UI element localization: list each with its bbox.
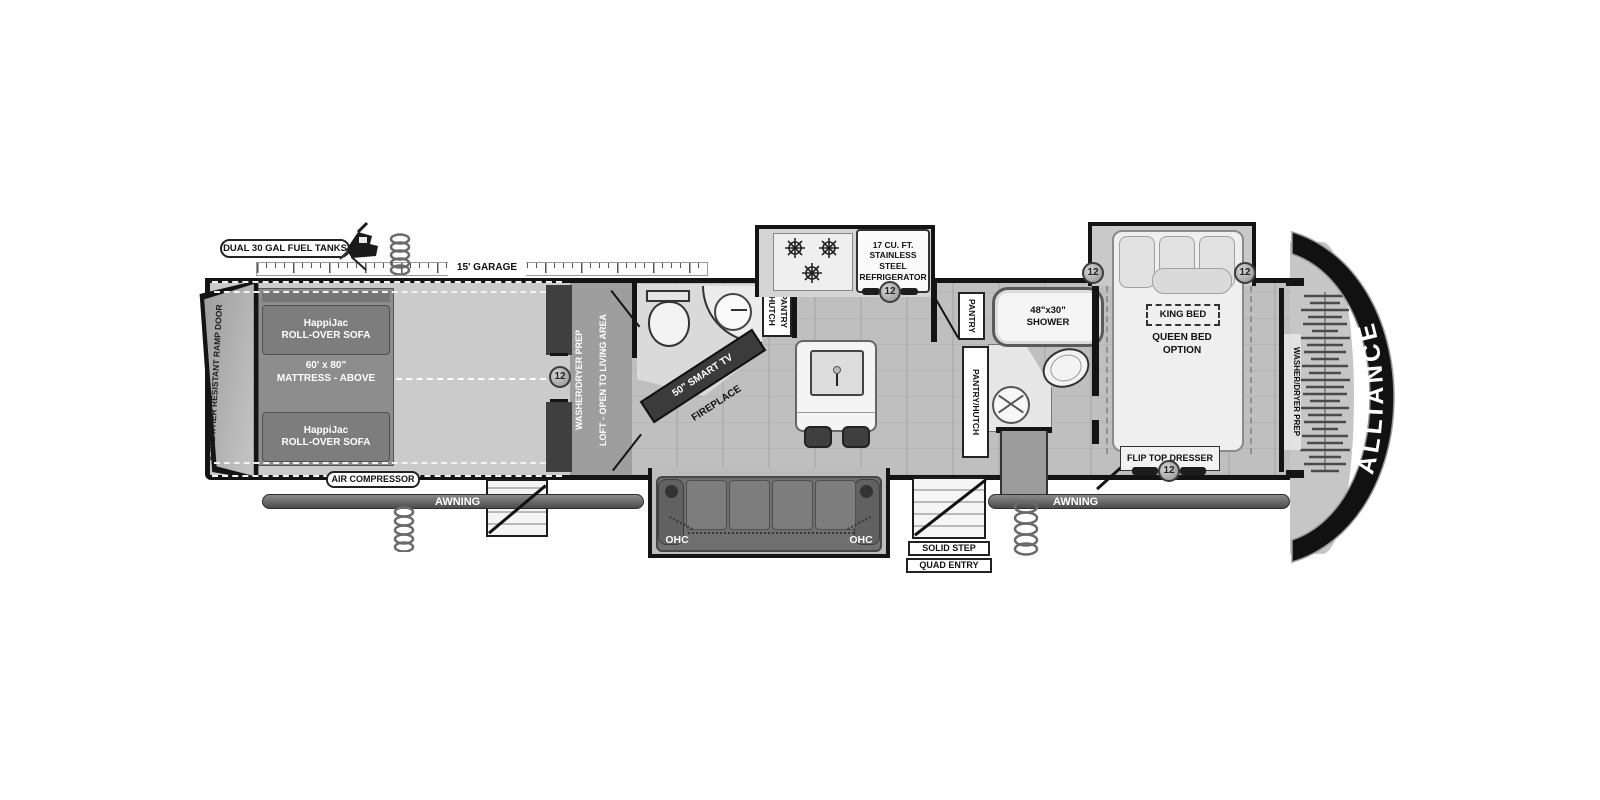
garage-dash-top — [214, 291, 546, 293]
hull-top-dash — [212, 281, 562, 283]
awning-right-label: AWNING — [1053, 496, 1098, 508]
awning-left-label: AWNING — [435, 496, 480, 508]
bed-bolster — [1152, 268, 1232, 294]
mattress-label: 60' x 80" MATTRESS - ABOVE — [264, 360, 388, 385]
rollover-sofa-front: HappiJac ROLL-OVER SOFA — [262, 305, 390, 355]
entry-landing — [1000, 431, 1048, 495]
king-bed-label: KING BED — [1160, 309, 1206, 321]
hose-coil-left-icon — [392, 506, 416, 552]
island-faucet-handle — [836, 374, 838, 386]
island-divider — [797, 412, 875, 413]
sofa-cupholder-left — [665, 485, 678, 498]
pantry-cabinet: PANTRY — [958, 292, 985, 340]
corner-sink-mid-basin — [714, 293, 752, 331]
air-compressor-label: AIR COMPRESSOR — [326, 471, 420, 488]
garage-door-marker: 12 — [549, 366, 571, 388]
bed-marker-left: 12 — [1082, 262, 1104, 284]
corner-sink-mid-faucet — [731, 309, 747, 311]
hose-coil-right-icon — [1012, 500, 1040, 556]
pillow-left — [1119, 236, 1155, 288]
awning-bar-left: AWNING — [262, 494, 644, 509]
rollover-sofa-rear: HappiJac ROLL-OVER SOFA — [262, 412, 390, 462]
sofa-rear-label: HappiJac ROLL-OVER SOFA — [282, 425, 371, 450]
sofa-front-dotted — [688, 532, 854, 534]
stove-burners-icon — [773, 233, 853, 291]
garage-wall-lower — [546, 402, 572, 472]
shower-label: 48"x30" SHOWER — [1027, 305, 1070, 329]
fridge-marker: 12 — [879, 281, 901, 303]
sofa-seat-1 — [686, 480, 727, 530]
bedroom-wall-lower — [1092, 420, 1099, 444]
brand-text: ALLIANCE — [1351, 317, 1389, 477]
svg-text:ALLIANCE: ALLIANCE — [1351, 317, 1389, 477]
air-compressor-text: AIR COMPRESSOR — [331, 474, 414, 485]
loft-open-label: LOFT - OPEN TO LIVING AREA — [598, 292, 616, 468]
sofa-cupholder-right — [860, 485, 873, 498]
bedroom-wall-upper — [1092, 282, 1099, 396]
fuel-tanks-text: DUAL 30 GAL FUEL TANKS — [223, 243, 347, 255]
floorplan-canvas: 8' WEATHER RESISTANT RAMP DOOR DUAL 30 G… — [0, 0, 1600, 800]
dresser-marker-wing-right — [1180, 467, 1206, 475]
fuel-nozzle-icon — [338, 220, 384, 260]
closet-wall — [1279, 288, 1284, 472]
pantry-hutch-cabinet: PANTRY/HUTCH — [962, 346, 989, 458]
quad-entry-text: QUAD ENTRY — [919, 560, 978, 571]
sofa-front-label: HappiJac ROLL-OVER SOFA — [282, 318, 371, 343]
island-stool-right — [842, 426, 870, 448]
refrigerator-label: 17 CU. FT. STAINLESS STEEL REFRIGERATOR — [858, 240, 928, 283]
garage-dash-mid — [396, 378, 546, 380]
island-faucet — [833, 366, 841, 374]
shower: 48"x30" SHOWER — [992, 287, 1104, 347]
king-bed-tag: KING BED — [1146, 304, 1220, 326]
front-cap: ALLIANCE — [1290, 224, 1396, 570]
garage-length-label: 15' GARAGE — [448, 259, 526, 278]
hutch-pantry-label: HUTCH PANTRY — [765, 294, 789, 328]
sofa-seat-4 — [815, 480, 856, 530]
garage-length-text: 15' GARAGE — [457, 262, 517, 275]
sofa-seat-3 — [772, 480, 813, 530]
ohc-right-label: OHC — [846, 534, 876, 547]
garage-door-rail-bottom — [550, 399, 568, 402]
dresser-marker: 12 — [1158, 460, 1180, 482]
quad-entry-tag: QUAD ENTRY — [906, 558, 992, 573]
solid-step-tag: SOLID STEP — [908, 541, 990, 556]
fuel-tanks-label: DUAL 30 GAL FUEL TANKS — [220, 239, 350, 258]
dresser-marker-wing-left — [1132, 467, 1158, 475]
fridge-marker-wing-right — [900, 288, 918, 295]
pantry-hutch-label: PANTRY/HUTCH — [970, 369, 981, 435]
queen-bed-label: QUEEN BED OPTION — [1138, 332, 1226, 357]
mid-bath-wall-left — [632, 282, 637, 358]
toilet-mid-bowl — [648, 301, 690, 347]
fridge-marker-wing-left — [862, 288, 880, 295]
ohc-left-label: OHC — [662, 534, 692, 547]
solid-step-text: SOLID STEP — [922, 543, 976, 554]
hose-coil-top-icon — [388, 233, 412, 275]
island-stool-left — [804, 426, 832, 448]
loft-washer-dryer-label: WASHER/DRYER PREP — [574, 298, 592, 462]
pantry-label: PANTRY — [966, 299, 977, 333]
garage-dash-bottom — [214, 462, 546, 464]
bed-marker-right: 12 — [1234, 262, 1256, 284]
garage-door-rail-top — [550, 353, 568, 356]
sofa-seat-2 — [729, 480, 770, 530]
garage-wall-upper — [546, 285, 572, 355]
